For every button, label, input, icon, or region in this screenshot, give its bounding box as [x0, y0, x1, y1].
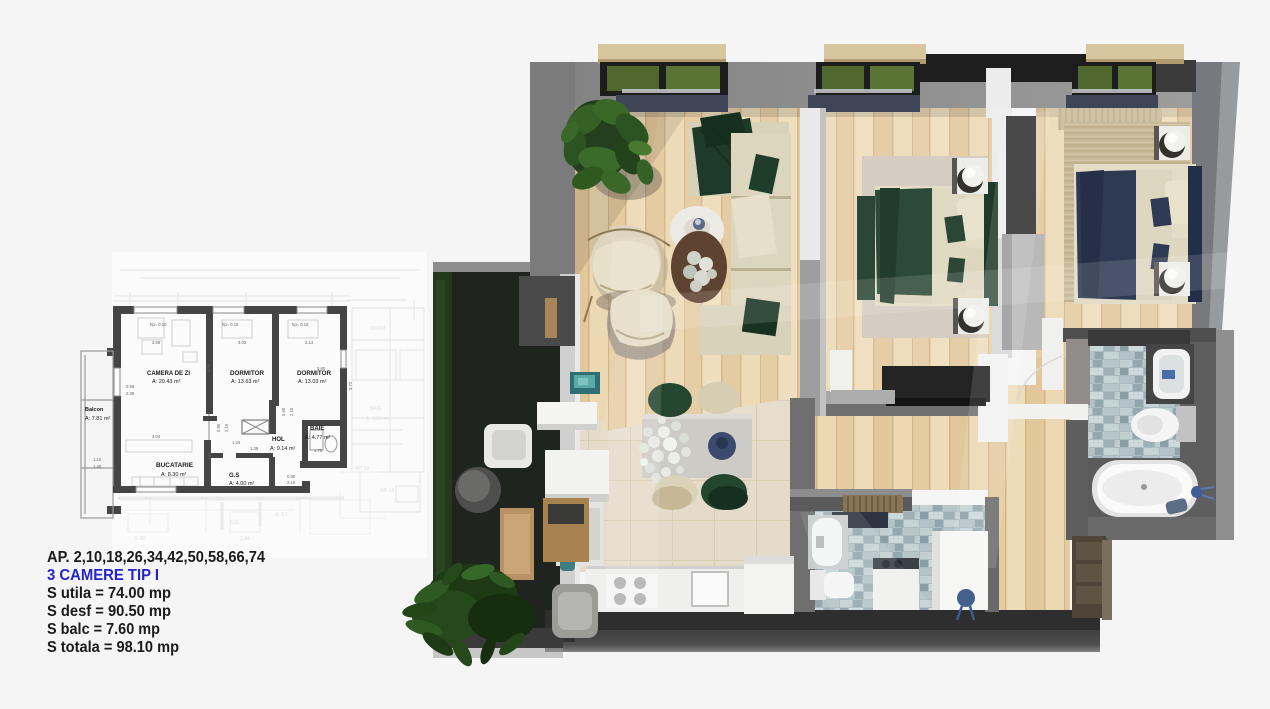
svg-text:0.80: 0.80 [287, 474, 296, 479]
svg-text:3.66: 3.66 [152, 340, 161, 345]
svg-text:A. 9.1: A. 9.1 [275, 512, 288, 518]
svg-text:A: 8.30 m²: A: 8.30 m² [161, 472, 187, 478]
svg-text:1.39: 1.39 [250, 446, 259, 451]
svg-text:3.72: 3.72 [348, 381, 353, 390]
svg-text:2.10: 2.10 [287, 480, 296, 485]
svg-text:AP. 2,10,18,26,34,42,50,58,66,: AP. 2,10,18,26,34,42,50,58,66,74 [47, 549, 265, 566]
svg-text:3.04: 3.04 [152, 434, 161, 439]
svg-text:2.96: 2.96 [135, 536, 145, 542]
svg-text:1.60: 1.60 [207, 451, 212, 460]
svg-text:1.34: 1.34 [240, 536, 250, 542]
svg-text:3.13: 3.13 [305, 340, 314, 345]
svg-text:A: 7.81 m²: A: 7.81 m² [85, 416, 111, 422]
svg-text:A: 20.43 m²: A: 20.43 m² [152, 379, 181, 385]
svg-text:S utila = 74.00 mp: S utila = 74.00 mp [47, 585, 171, 602]
svg-text:hp= 0.10: hp= 0.10 [150, 322, 167, 327]
svg-text:DORMITOR: DORMITOR [297, 371, 332, 377]
svg-text:G.S: G.S [230, 520, 239, 526]
svg-text:A: 9.14 m²: A: 9.14 m² [270, 446, 296, 452]
svg-text:0.90: 0.90 [281, 407, 286, 416]
svg-text:3.02: 3.02 [238, 340, 247, 345]
svg-text:A: 13.03 m²: A: 13.03 m² [298, 379, 327, 385]
svg-text:DORM: DORM [370, 326, 385, 332]
svg-text:A: 13.63 m²: A: 13.63 m² [231, 379, 260, 385]
svg-text:AP. 18: AP. 18 [380, 488, 395, 494]
svg-text:BUCATARIE: BUCATARIE [156, 463, 193, 469]
svg-text:Balcon: Balcon [85, 407, 104, 413]
svg-text:0.80: 0.80 [216, 423, 221, 432]
svg-text:3 CAMERE TIP I: 3 CAMERE TIP I [47, 567, 159, 584]
svg-text:BAIE: BAIE [370, 406, 382, 412]
svg-text:0.95: 0.95 [126, 384, 135, 389]
svg-text:2.10: 2.10 [289, 407, 294, 416]
svg-text:S desf = 90.50 mp: S desf = 90.50 mp [47, 603, 171, 620]
svg-text:1.40: 1.40 [93, 464, 102, 469]
svg-text:A: 4.00 m²: A: 4.00 m² [229, 481, 255, 487]
svg-text:G.S: G.S [229, 473, 239, 479]
svg-text:BAIE: BAIE [310, 426, 324, 432]
svg-text:1.34: 1.34 [232, 440, 241, 445]
svg-text:HOL: HOL [272, 437, 285, 443]
svg-text:CAMERA DE ZI: CAMERA DE ZI [147, 371, 190, 377]
svg-text:2.10: 2.10 [224, 423, 229, 432]
svg-text:A: 4.77 m²: A: 4.77 m² [305, 435, 331, 441]
svg-text:1.75: 1.75 [314, 448, 323, 453]
svg-text:1.10: 1.10 [93, 457, 102, 462]
svg-text:hp= 0.15: hp= 0.15 [222, 322, 239, 327]
svg-text:S totala = 98.10 mp: S totala = 98.10 mp [47, 639, 179, 656]
svg-text:DORMITOR: DORMITOR [230, 371, 265, 377]
svg-text:2.39: 2.39 [126, 391, 135, 396]
svg-text:A. 4.50 m: A. 4.50 m [366, 416, 387, 422]
svg-text:hp= 0.15: hp= 0.15 [292, 322, 309, 327]
svg-text:S balc = 7.60 mp: S balc = 7.60 mp [47, 621, 160, 638]
svg-text:4.59: 4.59 [206, 363, 211, 372]
svg-text:5.80: 5.80 [317, 366, 326, 371]
svg-text:AP. 18: AP. 18 [355, 466, 370, 472]
